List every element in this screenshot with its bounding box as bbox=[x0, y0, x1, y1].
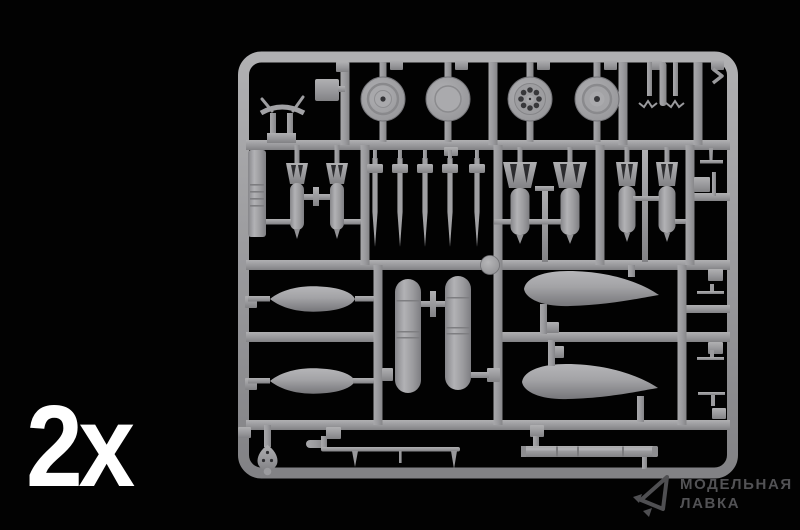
quantity-label: 2x bbox=[26, 388, 131, 504]
fuel-pod-part bbox=[395, 279, 421, 393]
paper-plane-logo-icon bbox=[630, 470, 678, 520]
product-photo: 2x МОДЕЛЬНАЯ ЛАВКА bbox=[0, 0, 800, 530]
watermark-line2: ЛАВКА bbox=[680, 494, 793, 513]
door-panel-part bbox=[248, 150, 266, 237]
watermark-text: МОДЕЛЬНАЯ ЛАВКА bbox=[680, 475, 793, 513]
watermark-line1: МОДЕЛЬНАЯ bbox=[680, 475, 793, 494]
watermark: МОДЕЛЬНАЯ ЛАВКА bbox=[630, 470, 793, 520]
fuel-pod-part bbox=[445, 276, 471, 390]
molding-knob bbox=[481, 256, 500, 275]
